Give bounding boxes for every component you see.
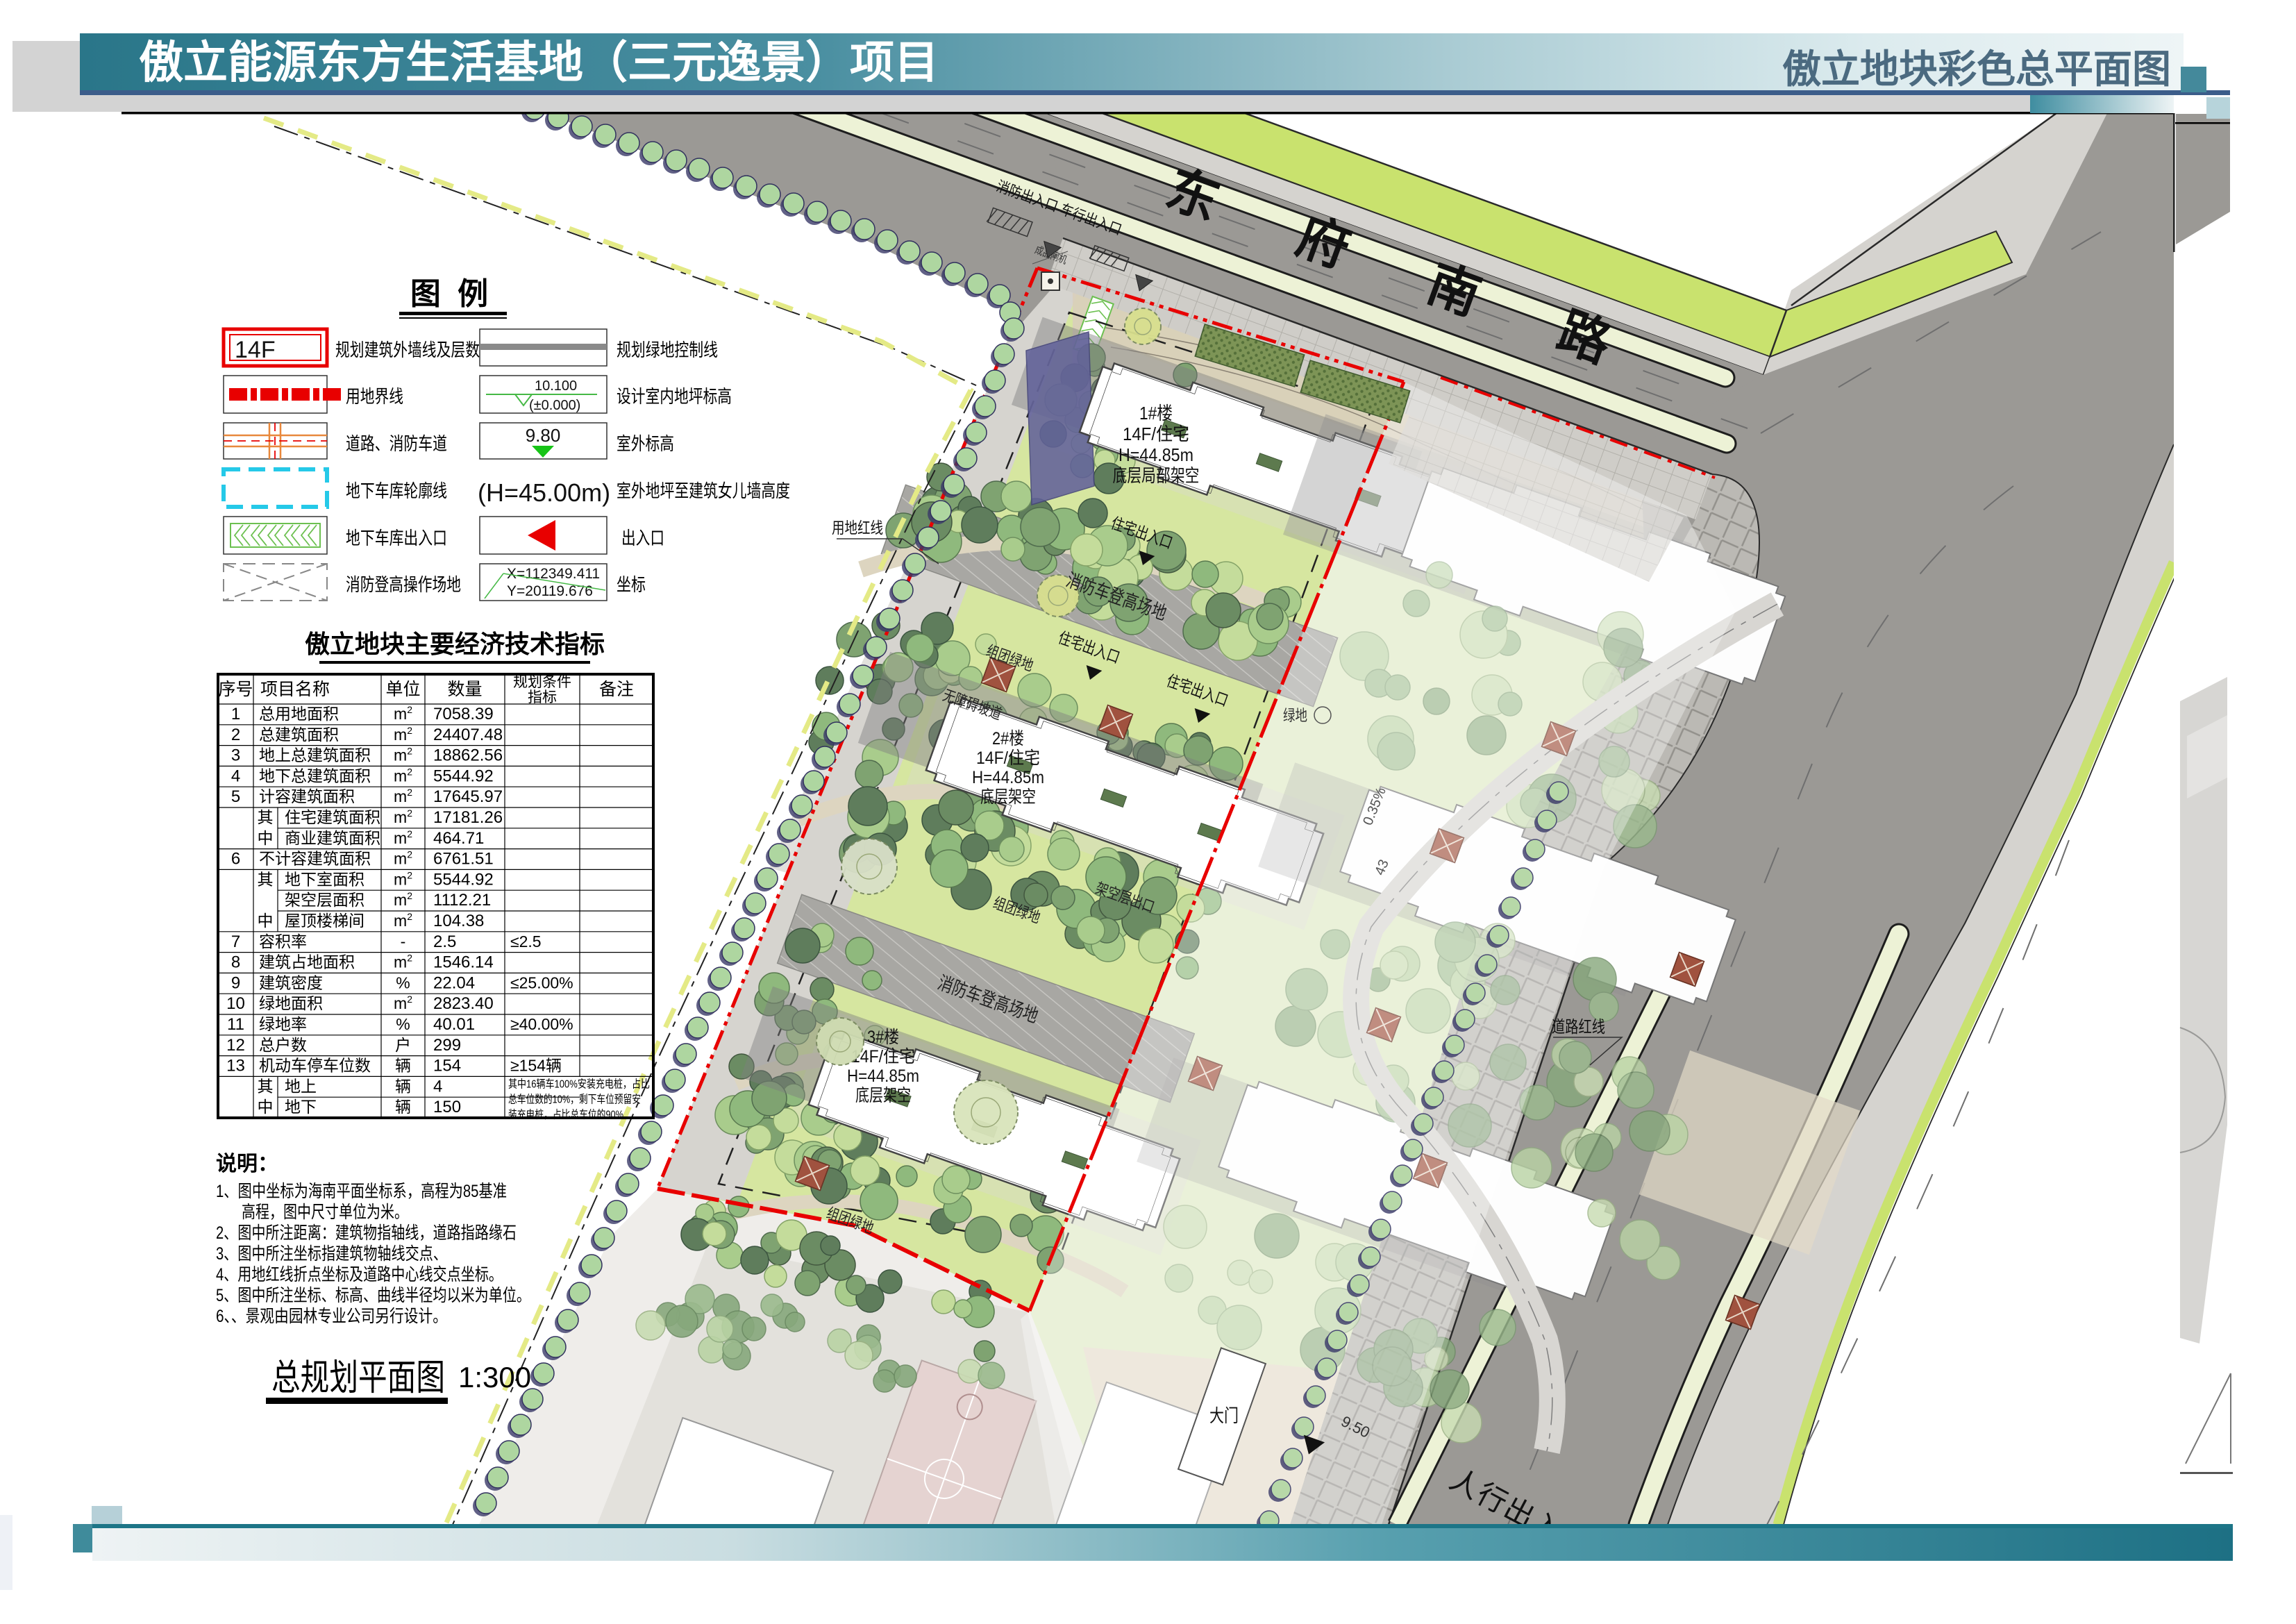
svg-text:≤25.00%: ≤25.00%: [510, 973, 573, 991]
svg-text:3#楼: 3#楼: [867, 1028, 899, 1047]
svg-text:1546.14: 1546.14: [433, 953, 494, 972]
svg-text:3: 3: [231, 746, 240, 765]
svg-text:规划建筑外墙线及层数: 规划建筑外墙线及层数: [335, 340, 480, 360]
svg-text:总规划平面图: 总规划平面图: [271, 1358, 445, 1398]
svg-text:计容建筑面积: 计容建筑面积: [259, 787, 355, 805]
svg-text:6: 6: [231, 850, 240, 869]
svg-text:户: 户: [395, 1036, 411, 1054]
svg-text:4: 4: [433, 1077, 442, 1096]
svg-text:规划绿地控制线: 规划绿地控制线: [617, 340, 718, 360]
svg-text:1、图中坐标为海南平面坐标系，高程为85基准: 1、图中坐标为海南平面坐标系，高程为85基准: [216, 1182, 507, 1201]
svg-text:消防登高操作场地: 消防登高操作场地: [346, 574, 461, 595]
svg-text:%: %: [396, 1015, 410, 1033]
svg-text:4: 4: [231, 767, 240, 785]
svg-text:40.01: 40.01: [433, 1015, 475, 1034]
svg-text:H=44.85m: H=44.85m: [972, 768, 1044, 787]
svg-text:≥154辆: ≥154辆: [510, 1057, 562, 1075]
svg-text:辆: 辆: [395, 1057, 411, 1075]
svg-text:中: 中: [258, 912, 274, 930]
svg-text:项目名称: 项目名称: [260, 680, 330, 699]
svg-text:6761.51: 6761.51: [433, 850, 494, 869]
svg-text:坐标: 坐标: [617, 574, 646, 595]
svg-text:2、图中所注距离：建筑物指轴线，道路指路缘石: 2、图中所注距离：建筑物指轴线，道路指路缘石: [216, 1223, 517, 1243]
svg-text:中: 中: [258, 1098, 274, 1116]
svg-text:(H=45.00m): (H=45.00m): [478, 478, 610, 507]
svg-text:不计容建筑面积: 不计容建筑面积: [259, 850, 371, 868]
svg-text:5544.92: 5544.92: [433, 870, 494, 889]
svg-text:机动车停车位数: 机动车停车位数: [259, 1057, 371, 1075]
svg-text:住宅建筑面积: 住宅建筑面积: [285, 808, 380, 826]
svg-text:出入口: 出入口: [621, 528, 664, 549]
svg-text:104.38: 104.38: [433, 912, 484, 930]
svg-text:傲立地块彩色总平面图: 傲立地块彩色总平面图: [1782, 47, 2171, 91]
svg-text:建筑占地面积: 建筑占地面积: [259, 953, 355, 971]
svg-text:12: 12: [226, 1036, 245, 1055]
svg-text:序号: 序号: [218, 680, 253, 699]
svg-text:总车位数的10%，剩下车位预留安: 总车位数的10%，剩下车位预留安: [508, 1093, 641, 1105]
svg-text:11: 11: [227, 1015, 244, 1034]
svg-text:10.100: 10.100: [535, 378, 577, 394]
svg-text:%: %: [396, 973, 410, 991]
svg-text:≥40.00%: ≥40.00%: [510, 1015, 573, 1033]
svg-text:地下车库出入口: 地下车库出入口: [346, 528, 447, 549]
svg-text:辆: 辆: [395, 1077, 411, 1095]
svg-text:13: 13: [226, 1057, 245, 1075]
svg-text:8: 8: [231, 953, 240, 972]
svg-text:6、、景观由园林专业公司另行设计。: 6、、景观由园林专业公司另行设计。: [216, 1307, 447, 1326]
svg-text:装充电桩，占比总车位的90%: 装充电桩，占比总车位的90%: [508, 1108, 623, 1121]
svg-text:地下: 地下: [285, 1098, 317, 1116]
svg-text:其: 其: [258, 808, 274, 826]
svg-text:5: 5: [231, 787, 240, 806]
svg-text:4、用地红线折点坐标及道路中心线交点坐标。: 4、用地红线折点坐标及道路中心线交点坐标。: [216, 1265, 503, 1284]
svg-text:绿地面积: 绿地面积: [259, 994, 323, 1012]
svg-text:2#楼: 2#楼: [992, 729, 1024, 748]
svg-text:22.04: 22.04: [433, 973, 475, 992]
svg-text:2.5: 2.5: [433, 932, 456, 951]
svg-text:地上: 地上: [285, 1077, 317, 1095]
svg-text:1112.21: 1112.21: [433, 891, 491, 910]
svg-text:室外标高: 室外标高: [617, 433, 674, 454]
svg-text:7058.39: 7058.39: [433, 705, 494, 723]
svg-text:说明：: 说明：: [216, 1153, 278, 1175]
svg-text:其中16辆车100%安装充电桩，占比: 其中16辆车100%安装充电桩，占比: [508, 1078, 650, 1090]
svg-text:建筑密度: 建筑密度: [259, 973, 323, 991]
svg-text:备注: 备注: [599, 680, 634, 699]
svg-text:地下总建筑面积: 地下总建筑面积: [259, 767, 371, 785]
svg-text:17181.26: 17181.26: [433, 808, 503, 827]
svg-text:绿地率: 绿地率: [259, 1015, 307, 1033]
svg-text:傲立能源东方生活基地（三元逸景）项目: 傲立能源东方生活基地（三元逸景）项目: [139, 37, 939, 87]
svg-text:中: 中: [258, 829, 274, 847]
svg-text:X=112349.411: X=112349.411: [507, 566, 600, 582]
svg-text:-: -: [401, 932, 406, 951]
svg-text:H=44.85m: H=44.85m: [847, 1066, 919, 1086]
svg-text:154: 154: [433, 1057, 461, 1075]
svg-text:≤2.5: ≤2.5: [510, 932, 542, 951]
svg-text:(±0.000): (±0.000): [529, 398, 580, 413]
svg-text:道路红线: 道路红线: [1552, 1018, 1605, 1037]
svg-text:辆: 辆: [395, 1098, 411, 1116]
svg-text:7: 7: [231, 932, 240, 951]
svg-text:总用地面积: 总用地面积: [259, 705, 339, 723]
svg-text:地上总建筑面积: 地上总建筑面积: [259, 746, 371, 764]
svg-text:用地界线: 用地界线: [346, 386, 403, 407]
svg-text:地下室面积: 地下室面积: [285, 870, 364, 888]
svg-text:室外地坪至建筑女儿墙高度: 室外地坪至建筑女儿墙高度: [617, 480, 790, 501]
svg-text:指标: 指标: [528, 689, 557, 705]
svg-text:总建筑面积: 总建筑面积: [259, 726, 339, 744]
svg-text:用地红线: 用地红线: [832, 519, 883, 537]
svg-text:单位: 单位: [385, 680, 420, 699]
svg-text:H=44.85m: H=44.85m: [1118, 444, 1193, 465]
svg-text:屋顶楼梯间: 屋顶楼梯间: [285, 912, 364, 930]
svg-text:图 例: 图 例: [410, 277, 492, 311]
svg-text:底层架空: 底层架空: [855, 1086, 911, 1105]
svg-text:容积率: 容积率: [259, 932, 307, 951]
svg-text:架空层面积: 架空层面积: [285, 891, 364, 909]
svg-text:14F: 14F: [235, 337, 276, 363]
svg-text:绿地: 绿地: [1283, 707, 1307, 724]
svg-text:9.80: 9.80: [526, 425, 561, 446]
svg-text:总户数: 总户数: [259, 1036, 307, 1054]
svg-text:14F/住宅: 14F/住宅: [976, 748, 1040, 768]
svg-text:5544.92: 5544.92: [433, 767, 494, 785]
svg-text:高程，图中尺寸单位为米。: 高程，图中尺寸单位为米。: [242, 1203, 408, 1222]
svg-text:设计室内地坪标高: 设计室内地坪标高: [617, 386, 732, 407]
svg-text:其: 其: [258, 1077, 274, 1095]
svg-text:14F/住宅: 14F/住宅: [1123, 424, 1189, 444]
svg-text:底层架空: 底层架空: [980, 787, 1036, 807]
svg-text:9: 9: [231, 973, 240, 992]
svg-text:地下车库轮廓线: 地下车库轮廓线: [346, 480, 447, 501]
svg-text:道路、消防车道: 道路、消防车道: [346, 433, 447, 454]
svg-text:1: 1: [231, 705, 240, 723]
svg-text:464.71: 464.71: [433, 829, 484, 848]
svg-text:24407.48: 24407.48: [433, 726, 503, 744]
svg-text:1#楼: 1#楼: [1139, 403, 1173, 424]
svg-text:17645.97: 17645.97: [433, 787, 503, 806]
svg-text:10: 10: [226, 994, 245, 1013]
svg-text:其: 其: [258, 870, 274, 888]
svg-text:18862.56: 18862.56: [433, 746, 503, 765]
svg-text:大门: 大门: [1209, 1405, 1239, 1426]
svg-text:150: 150: [433, 1098, 461, 1116]
svg-text:2823.40: 2823.40: [433, 994, 494, 1013]
svg-text:数量: 数量: [447, 680, 482, 699]
svg-text:底层局部架空: 底层局部架空: [1113, 465, 1200, 486]
svg-text:2: 2: [231, 726, 240, 744]
svg-text:1:300: 1:300: [458, 1361, 531, 1393]
svg-text:傲立地块主要经济技术指标: 傲立地块主要经济技术指标: [305, 630, 605, 658]
svg-text:3、图中所注坐标指建筑物轴线交点、: 3、图中所注坐标指建筑物轴线交点、: [216, 1244, 447, 1264]
svg-text:商业建筑面积: 商业建筑面积: [285, 829, 380, 847]
svg-text:规划条件: 规划条件: [513, 674, 571, 690]
svg-text:299: 299: [433, 1036, 461, 1055]
svg-text:5、图中所注坐标、标高、曲线半径均以米为单位。: 5、图中所注坐标、标高、曲线半径均以米为单位。: [216, 1286, 530, 1305]
